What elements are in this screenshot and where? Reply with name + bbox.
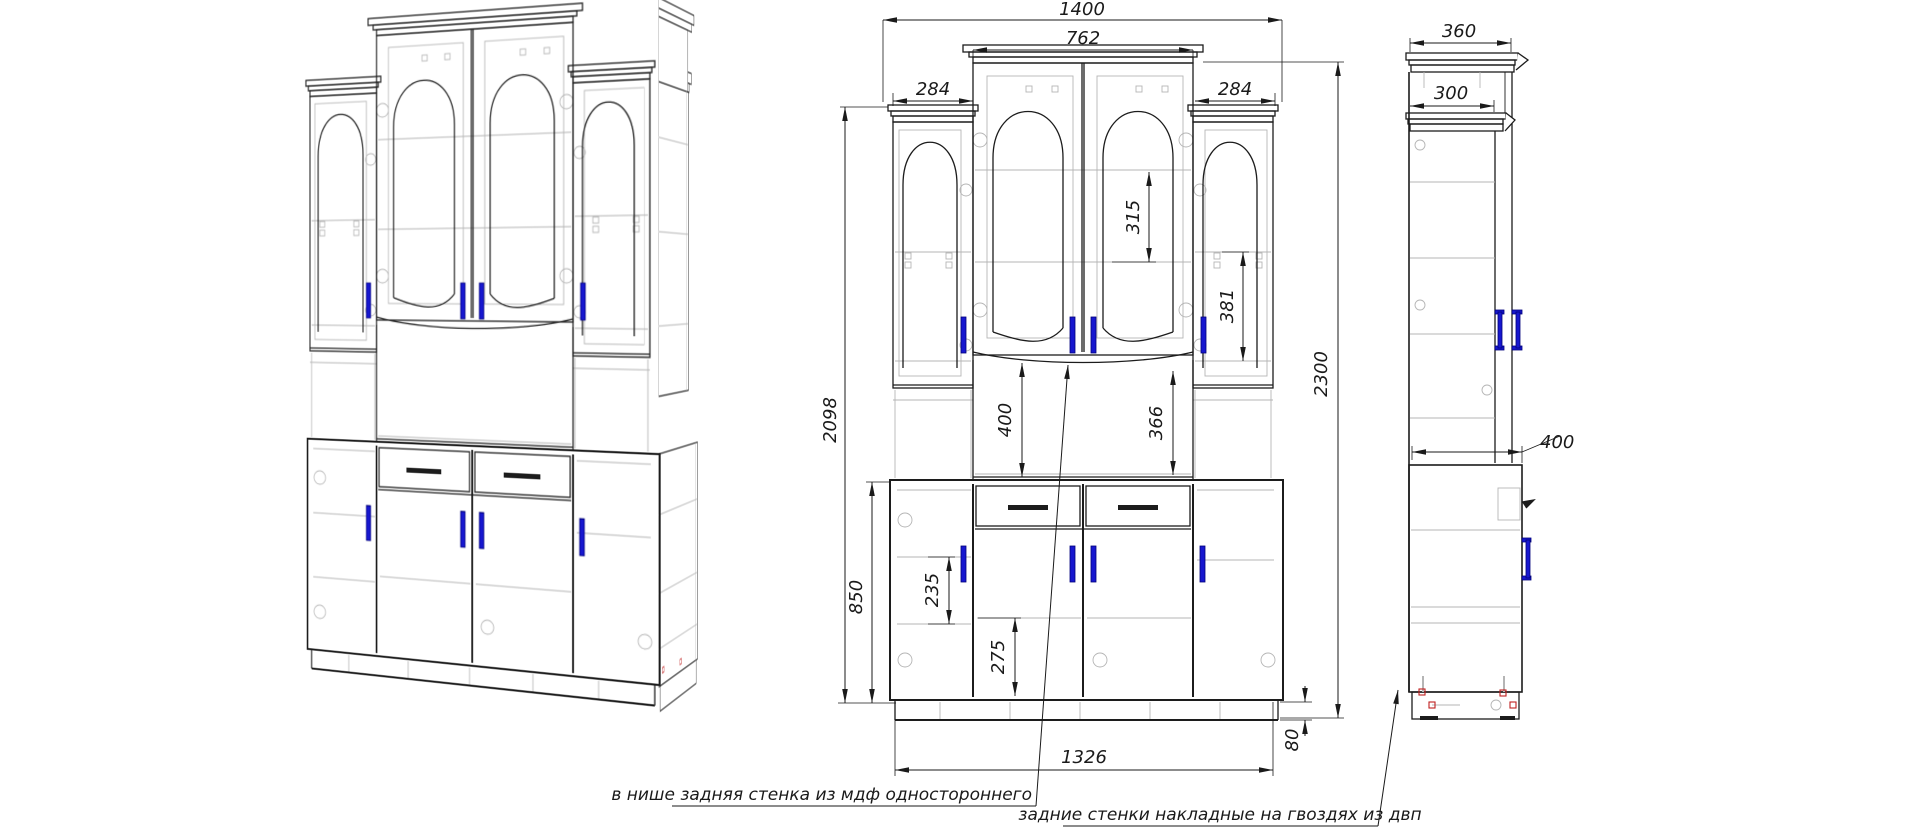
dim-label-overall-width: 1400 <box>1059 0 1105 20</box>
dim-plinth-height <box>1280 686 1312 736</box>
front-view-dim-labels: 1400 762 284 284 2098 2300 315 381 400 3… <box>820 0 1332 768</box>
annotation-niche-note: в нише задняя стенка из мдф односторонне… <box>611 785 1032 805</box>
side-view: 360 300 400 <box>1406 21 1574 720</box>
dim-label-cornice-depth: 360 <box>1442 21 1476 42</box>
drawing-canvas: 1400 762 284 284 2098 2300 315 381 400 3… <box>0 0 1920 834</box>
side-view-dim-labels: 360 300 400 <box>1434 21 1575 453</box>
dim-label-niche-height-right: 366 <box>1146 406 1167 440</box>
dim-base-height <box>866 482 890 703</box>
dim-label-base-height: 850 <box>846 580 867 614</box>
dim-label-total-height: 2300 <box>1311 351 1332 397</box>
dim-label-upper-depth: 300 <box>1434 83 1468 104</box>
front-view-dimensions <box>838 20 1344 776</box>
dim-base-depth <box>1412 436 1560 463</box>
dim-label-niche-height-left: 400 <box>995 403 1016 437</box>
dim-label-center-width: 762 <box>1066 28 1100 49</box>
dim-label-base-shelf-gap-left: 235 <box>922 573 943 607</box>
dim-label-base-shelf-gap-center: 275 <box>988 640 1009 674</box>
drawing-sheet: 1400 762 284 284 2098 2300 315 381 400 3… <box>0 0 1920 834</box>
dim-label-wing-glass-gap: 381 <box>1217 289 1238 323</box>
front-view <box>888 45 1283 720</box>
annotation-back-panels-note: задние стенки накладные на гвоздях из дв… <box>1018 805 1421 825</box>
dim-label-upper-height: 2098 <box>820 397 841 443</box>
dim-label-left-wing-width: 284 <box>916 79 950 100</box>
annotations: в нише задняя стенка из мдф односторонне… <box>611 365 1421 826</box>
dim-label-base-inner-width: 1326 <box>1061 747 1107 768</box>
side-door-handles <box>1495 310 1531 580</box>
dim-label-right-wing-width: 284 <box>1218 79 1252 100</box>
dim-label-base-depth: 400 <box>1540 432 1574 453</box>
dim-label-plinth-height: 80 <box>1282 729 1303 752</box>
side-view-dimensions <box>1410 38 1560 463</box>
dim-label-center-glass-gap: 315 <box>1123 200 1144 234</box>
